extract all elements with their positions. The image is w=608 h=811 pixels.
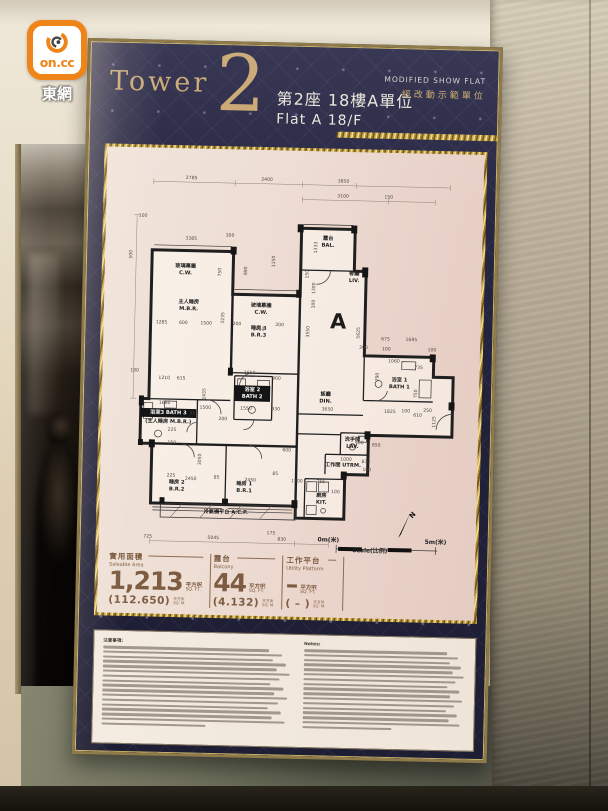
stat-title-zh: 工作平台 [286,555,324,567]
dimension-label: 85 [214,475,220,481]
stat-metric: ( – ) [285,597,310,610]
room-label: 冷氣機平台 A.C.P. [204,507,248,516]
dimension-label: 2450 [185,476,197,482]
room-label: C.W. [254,310,267,316]
room-label: 廚房 [316,491,327,499]
dimension-label: 100 [362,467,371,473]
north-label: N [408,510,418,520]
stat-value: 44 [213,571,246,595]
dimension-label: 1825 [384,409,396,415]
stats-divider [342,557,344,611]
dimension-label: 500 [128,250,134,259]
room-label: LIV. [349,278,360,284]
dimension-label: 100 [382,346,391,352]
stat-rule [328,560,336,561]
dimension-label: 200 [233,321,242,327]
dimension-label: 615 [177,375,186,381]
flag-zh: 經改動示範單位 [384,87,486,102]
floor-shadow [0,786,608,811]
stat-column: 實用面積Saleable Area1,213平方呎SQ. FT.(112.650… [105,549,210,611]
dimension-label: 225 [167,472,176,478]
oncc-swirl-icon [44,30,70,56]
dimension-label: 735 [414,365,423,371]
scale-right-label: 5m(米) [425,538,447,546]
dimension-label: 400 [355,440,364,446]
room-label: BATH 2 [242,394,263,400]
floorplan-panel: 玻璃幕牆C.W.主人睡房M.B.R.玻璃幕牆C.W.睡房 3B.R.3露台BAL… [97,146,484,620]
dimension-label: 2785 [186,175,198,181]
fineprint-line [302,726,391,731]
dimension-label: 930 [271,406,280,412]
stat-title-zh: 露台 [214,553,234,564]
room-label: C.W. [179,270,192,276]
unit-letter: A [330,309,348,333]
room-label: DIN. [319,398,332,404]
showflat-poster: Tower 2 第2座 18樓A單位 Flat A 18/F MODIFIED … [72,38,503,763]
flag-en: MODIFIED SHOW FLAT [384,75,486,86]
oncc-logo-text: on.cc [40,57,75,70]
dimension-label: 150 [384,194,393,200]
oncc-site-name: 東網 [24,83,90,104]
dimension-label: 600 [179,320,188,326]
notes-panel: 注意事項: Notes: [91,629,476,752]
dimension-label: 1500 [199,405,211,411]
dimension-label: 85 [272,471,278,477]
gold-divider [337,132,498,142]
dimension-label: 1210 [158,375,170,381]
stat-unit-en: SQ. FT. [186,588,203,593]
room-label: B.R.3 [251,332,267,338]
dimension-label: 750 [217,268,223,277]
dimension-label: 250 [423,408,432,414]
dimension-label: 100 [428,347,437,353]
dimension-label: 225 [168,427,177,433]
dimension-label: 2450 [244,477,256,483]
dimension-label: 150 [167,440,176,446]
room-label: B.R.2 [169,486,185,492]
room-label: M.B.R. [179,306,198,312]
dimension-label: 850 [372,442,381,448]
dimension-label: 1300 [311,282,317,294]
dimension-label: 1000 [340,457,352,463]
light-reflection [29,254,59,414]
room-label: BATH 1 [389,384,410,390]
dimension-label: 3850 [338,178,350,184]
oncc-watermark: on.cc 東網 [24,20,90,104]
dimension-label: 1125 [431,416,437,428]
dimension-label: 2450 [253,326,265,332]
dimension-label: 200 [275,322,284,328]
dimension-label: 175 [267,530,276,536]
oncc-logo: on.cc [27,20,87,80]
dimension-label: 2400 [261,177,273,183]
dimension-label: 100 [139,213,148,219]
dimension-label: 3050 [197,453,203,465]
dimension-label: 200 [218,416,227,422]
area-stats: 實用面積Saleable Area1,213平方呎SQ. FT.(112.650… [105,549,344,614]
dimension-label: 2435 [201,388,207,400]
dimension-label: 3550 [305,326,311,338]
dimension-label: 200 [359,345,368,351]
dimension-label: 300 [311,300,317,309]
dimension-label: 35 [189,410,195,416]
dimension-label: 3235 [220,312,226,324]
notes-english-column: Notes: [302,642,466,744]
stat-unit-en: SQ. FT. [300,591,317,596]
stat-column: 露台Balcony44平方呎SQ. FT.(4.132)平方米SQ. M. [210,551,283,613]
dimension-label: 3385 [185,236,197,242]
dimension-label: 100 [331,489,340,495]
dimension-label: 1660 [159,400,171,406]
dimension-label: 1500 [291,478,303,484]
dimension-label: 1550 [244,370,256,376]
dimension-label: 715 [316,479,325,485]
dimension-label: 1500 [200,320,212,326]
marble-column [490,0,608,811]
notes-fineprint-zh [101,646,291,730]
dimension-label: 150 [304,270,310,279]
room-label: BAL. [321,243,334,249]
dimension-label: 3650 [321,406,333,412]
scale-bar-seg2 [388,548,412,553]
dimension-label: 1285 [156,319,168,325]
scale-left-label: 0m(米) [317,535,339,543]
dimension-label: 830 [277,537,286,543]
dimension-label: 790 [375,372,381,381]
dimension-label: 675 [381,336,390,342]
modified-showflat-flag: MODIFIED SHOW FLAT 經改動示範單位 [384,75,486,102]
dimension-label: 890 [243,266,249,275]
stat-unit-en: SQ. FT. [249,590,266,595]
stat-value: – [286,573,298,597]
room-label: 露台 [323,234,334,242]
stat-title-zh: 實用面積 [109,551,144,563]
stat-column: 工作平台Utility Platform–平方呎SQ. FT.( – )平方米S… [282,553,343,614]
dimension-label: 725 [143,533,152,539]
stat-value: 1,213 [108,569,183,594]
fineprint-line [101,722,205,727]
dimension-label: 1060 [388,358,400,364]
floorplan-drawing: 玻璃幕牆C.W.主人睡房M.B.R.玻璃幕牆C.W.睡房 3B.R.3露台BAL… [98,146,484,556]
dimension-label: 1550 [240,406,252,412]
notes-chinese-column: 注意事項: [101,638,292,740]
stat-metric: (4.132) [213,596,260,609]
dimension-label: 5625 [356,327,362,339]
room-label: KIT. [316,500,327,506]
stat-rule [148,555,203,557]
stat-metric: (112.650) [108,593,170,606]
stat-metric-unit-en: SQ. M. [262,603,274,607]
dimension-label: 838 [361,459,370,465]
stat-metric-unit-en: SQ. M. [313,604,325,608]
stat-metric-unit-en: SQ. M. [173,601,185,605]
dimension-label: 1695 [405,337,417,343]
floorplan-gold-frame: 玻璃幕牆C.W.主人睡房M.B.R.玻璃幕牆C.W.睡房 3B.R.3露台BAL… [94,143,488,624]
tower-number: 2 [215,44,266,127]
lobby-photo: on.cc 東網 Tower 2 第2座 18樓A單位 Flat A 18/F … [0,0,608,811]
dimension-label: 180 [130,367,139,373]
person-reflection-head [47,412,71,446]
dimension-label: 100 [401,408,410,414]
tower-label: Tower [110,66,210,99]
dimension-label: 300 [226,233,235,239]
room-label: B.R.1 [236,488,252,494]
dimension-label: 3100 [337,193,349,199]
stat-rule [238,558,276,560]
unit-subtitle-en: Flat A 18/F [276,111,413,130]
dimension-label: 5045 [207,535,219,541]
dimension-label: 750 [413,389,419,398]
dimension-label: 1333 [313,242,319,254]
dimension-label: 1150 [271,255,277,267]
dimension-label: 610 [413,413,422,419]
dimension-label: 600 [282,447,291,453]
scale-caption: Scale(比例) [352,546,388,555]
notes-fineprint-en [302,649,466,732]
dimension-label: 900 [272,376,281,382]
marble-seam [589,0,591,811]
